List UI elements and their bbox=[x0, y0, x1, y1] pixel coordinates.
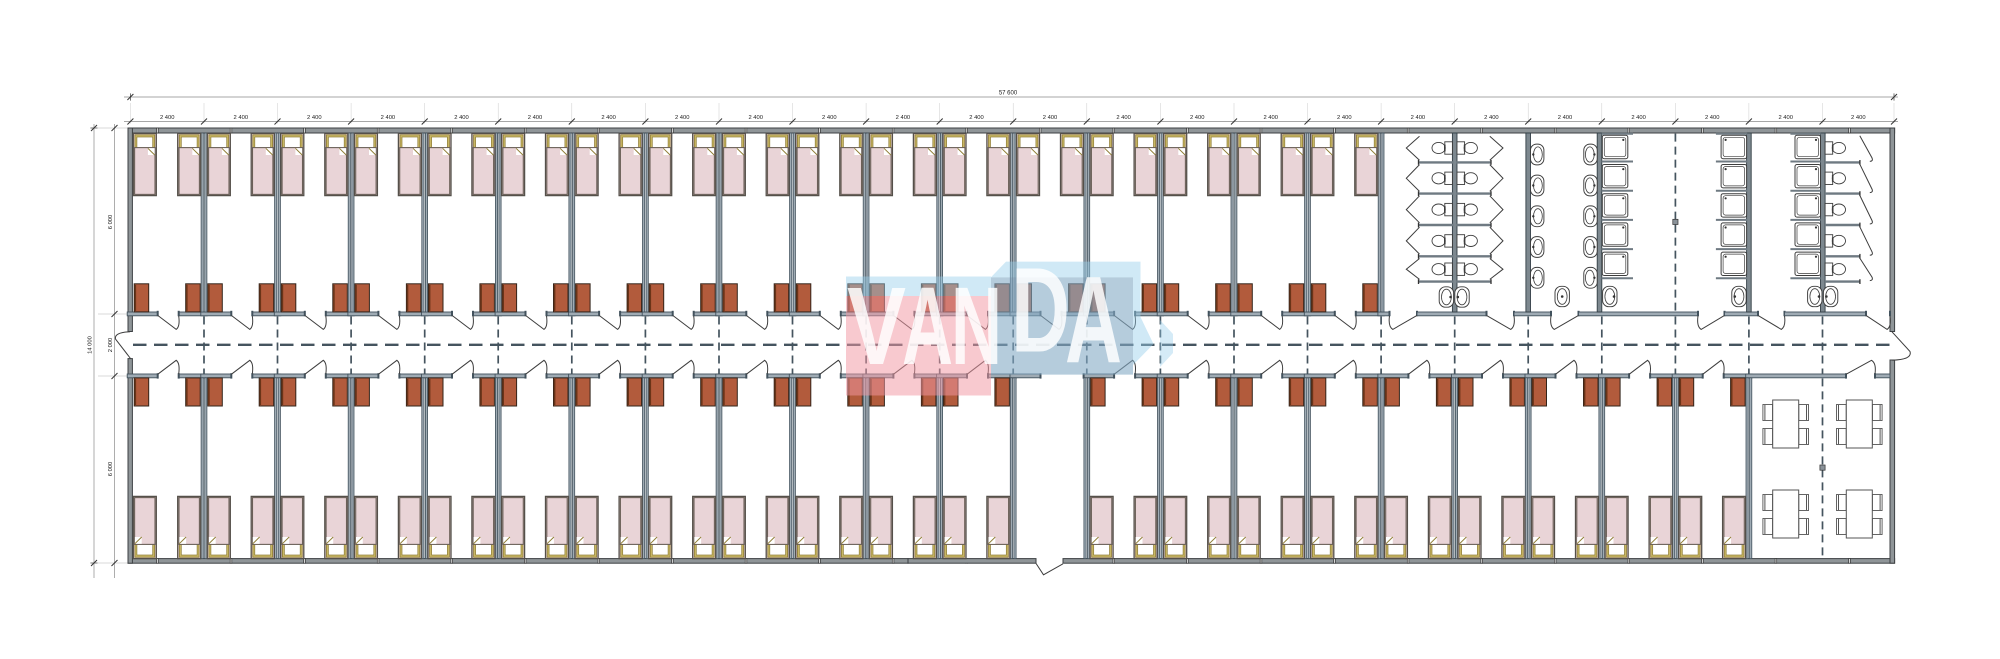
svg-text:2 400: 2 400 bbox=[1631, 115, 1646, 121]
svg-text:A: A bbox=[902, 265, 953, 388]
svg-text:2 400: 2 400 bbox=[675, 115, 690, 121]
svg-text:2 400: 2 400 bbox=[969, 115, 984, 121]
svg-text:2 400: 2 400 bbox=[1190, 115, 1205, 121]
svg-text:2 400: 2 400 bbox=[1484, 115, 1499, 121]
svg-text:2 400: 2 400 bbox=[381, 115, 396, 121]
svg-text:A: A bbox=[1065, 252, 1122, 389]
svg-text:2 400: 2 400 bbox=[1263, 115, 1278, 121]
svg-text:2 400: 2 400 bbox=[1558, 115, 1573, 121]
svg-text:2 400: 2 400 bbox=[1337, 115, 1352, 121]
svg-text:2 400: 2 400 bbox=[1851, 115, 1866, 121]
svg-text:2 400: 2 400 bbox=[234, 115, 249, 121]
svg-text:2 000: 2 000 bbox=[108, 338, 114, 353]
svg-text:V: V bbox=[847, 265, 906, 388]
svg-text:2 400: 2 400 bbox=[601, 115, 616, 121]
svg-text:2 400: 2 400 bbox=[160, 115, 175, 121]
svg-text:6 000: 6 000 bbox=[108, 462, 114, 477]
svg-text:D: D bbox=[1011, 242, 1070, 378]
svg-text:2 400: 2 400 bbox=[896, 115, 911, 121]
svg-text:2 400: 2 400 bbox=[454, 115, 469, 121]
svg-text:57 600: 57 600 bbox=[999, 91, 1018, 97]
svg-text:2 400: 2 400 bbox=[822, 115, 837, 121]
svg-text:6 000: 6 000 bbox=[108, 215, 114, 230]
svg-text:2 400: 2 400 bbox=[748, 115, 763, 121]
svg-text:2 400: 2 400 bbox=[528, 115, 543, 121]
svg-text:2 400: 2 400 bbox=[1411, 115, 1426, 121]
svg-text:2 400: 2 400 bbox=[1043, 115, 1058, 121]
svg-text:14 000: 14 000 bbox=[88, 336, 94, 354]
svg-text:2 400: 2 400 bbox=[1705, 115, 1720, 121]
svg-text:N: N bbox=[951, 265, 1002, 388]
svg-text:2 400: 2 400 bbox=[1116, 115, 1131, 121]
svg-text:2 400: 2 400 bbox=[307, 115, 322, 121]
svg-text:2 400: 2 400 bbox=[1778, 115, 1793, 121]
